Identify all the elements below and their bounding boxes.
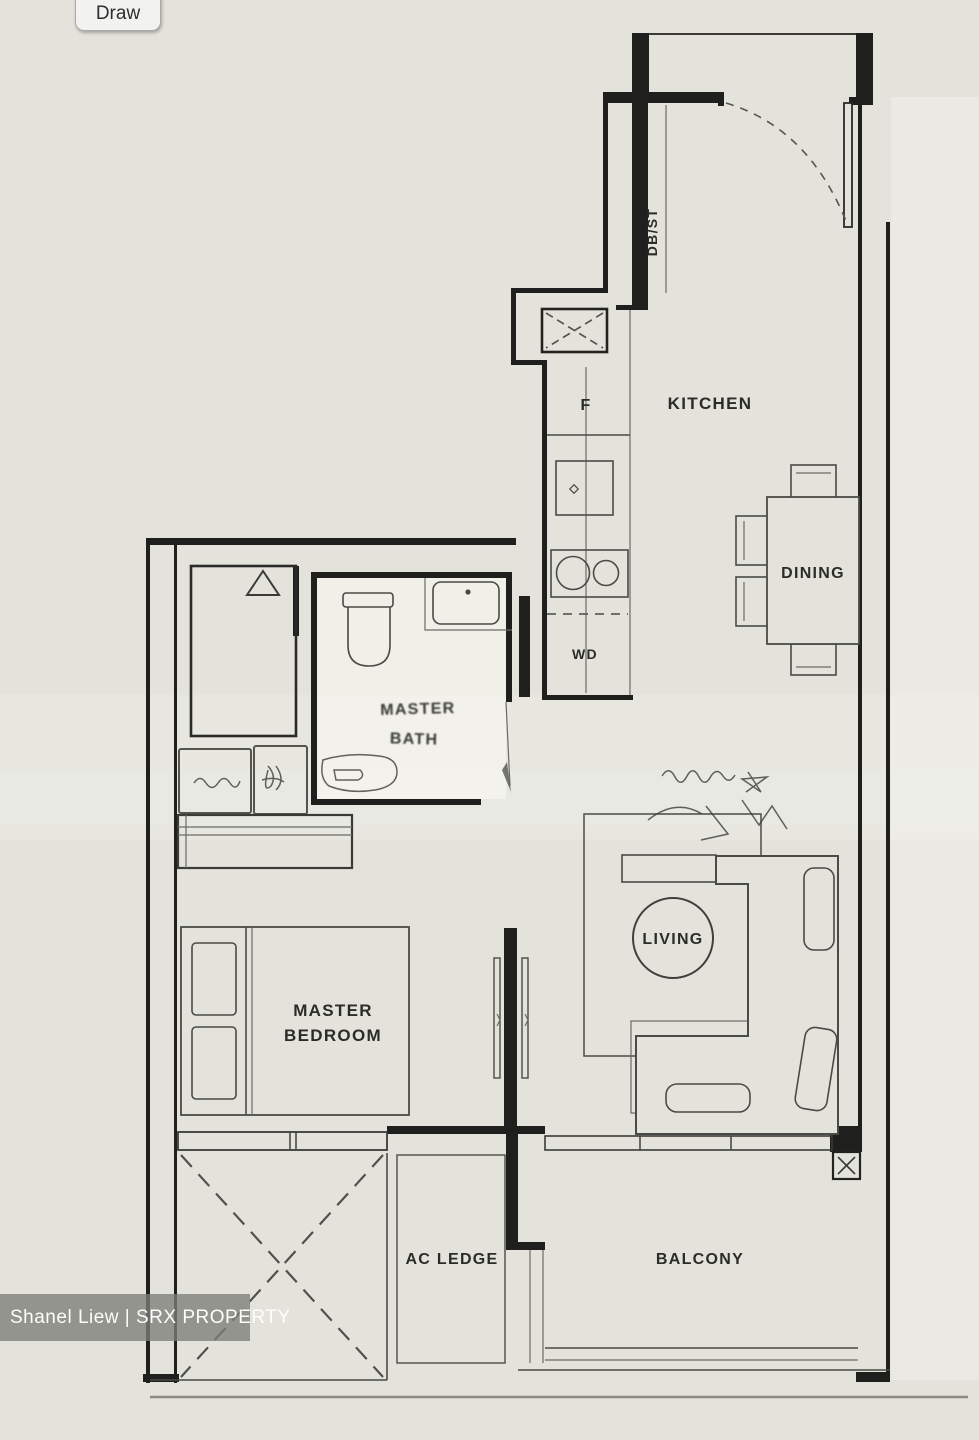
balcony-label: BALCONY bbox=[656, 1251, 744, 1268]
kitchen-hob bbox=[551, 550, 628, 597]
watermark: Shanel Liew | SRX PROPERTY bbox=[0, 1294, 250, 1341]
ac-unit-box bbox=[833, 1152, 860, 1179]
master-bedroom-label-1: MASTER bbox=[293, 1001, 373, 1020]
living-label: LIVING bbox=[642, 931, 703, 948]
master-bath-label-2: BATH bbox=[390, 730, 439, 748]
balcony: BALCONY bbox=[518, 1250, 890, 1370]
kitchen-sink bbox=[556, 461, 613, 515]
watermark-text: Shanel Liew | SRX PROPERTY bbox=[10, 1307, 291, 1328]
ac-ledge-label: AC LEDGE bbox=[405, 1251, 498, 1268]
dbst-label: DB/ST bbox=[644, 208, 660, 257]
draw-button[interactable]: Draw bbox=[75, 0, 161, 31]
ac-ledge: AC LEDGE bbox=[397, 1155, 505, 1363]
floor-plan: DB/ST F WD KITCHEN bbox=[0, 0, 979, 1440]
kitchen-counter: F WD bbox=[547, 310, 630, 695]
fridge-label: F bbox=[580, 397, 591, 414]
void-cross bbox=[150, 1153, 387, 1380]
kitchen-label: KITCHEN bbox=[668, 394, 753, 413]
bedroom-window bbox=[178, 1132, 387, 1150]
floorplan-page: DB/ST F WD KITCHEN bbox=[0, 0, 979, 1440]
shaft-hatch bbox=[542, 309, 607, 352]
master-bedroom-label-2: BEDROOM bbox=[284, 1026, 382, 1045]
entry-door bbox=[726, 103, 852, 227]
master-bath-label-1: MASTER bbox=[380, 700, 456, 719]
washer-dryer-label: WD bbox=[572, 646, 598, 662]
bed bbox=[181, 927, 409, 1115]
living-window bbox=[545, 1136, 832, 1150]
sofa bbox=[622, 855, 838, 1134]
dining-label: DINING bbox=[781, 565, 845, 582]
dining-set: DINING bbox=[736, 465, 859, 675]
